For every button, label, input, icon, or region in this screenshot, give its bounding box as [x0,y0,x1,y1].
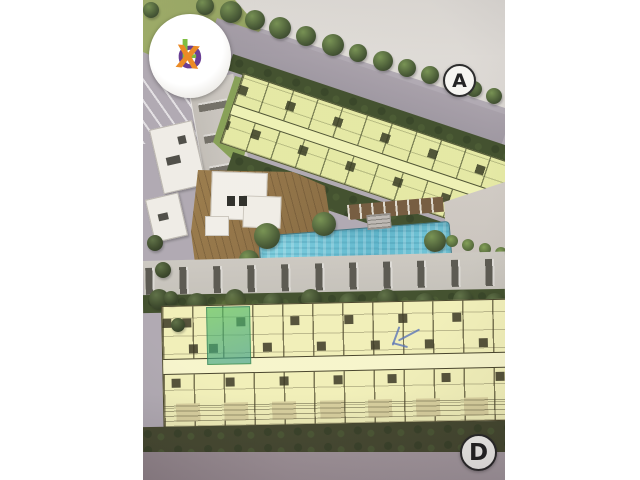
highlighted-unit [206,306,251,365]
tree-icon [245,10,265,30]
tree-icon [220,1,242,23]
building-d-badge: D [460,434,497,471]
balcony-row [164,397,505,422]
tree-icon [312,212,336,236]
tree-icon [143,2,159,18]
tree-icon [164,291,178,305]
pool-steps [366,213,391,230]
building-d-label: D [469,440,488,466]
tree-icon [349,44,367,62]
building-a-label: A [452,70,467,92]
tree-icon [155,262,171,278]
tree-icon [486,88,502,104]
screenshot-canvas: A D O L X [0,0,640,480]
site-plan-photo: A D O L X [143,0,505,480]
tree-icon [424,230,446,252]
clubhouse-door [239,196,247,206]
building-d-floorplan [161,299,505,428]
tree-icon [254,223,280,249]
bottom-road [143,452,505,480]
bush-icon [462,239,474,251]
building-a-badge: A [443,64,476,97]
tree-icon [421,66,439,84]
roof-detail [177,135,187,145]
unit-fixtures [164,372,505,388]
tree-icon [147,235,163,251]
clubhouse-annex [205,216,229,236]
tree-icon [296,26,316,46]
roof-detail [158,212,169,221]
roof-detail [166,155,181,166]
bush-icon [446,235,458,247]
tree-icon [322,34,344,56]
clubhouse-door [227,196,235,206]
tree-icon [171,318,185,332]
tree-icon [269,17,291,39]
tree-icon [373,51,393,71]
tree-icon [398,59,416,77]
olx-letter-x: X [175,42,202,75]
olx-watermark: O L X [149,14,231,98]
